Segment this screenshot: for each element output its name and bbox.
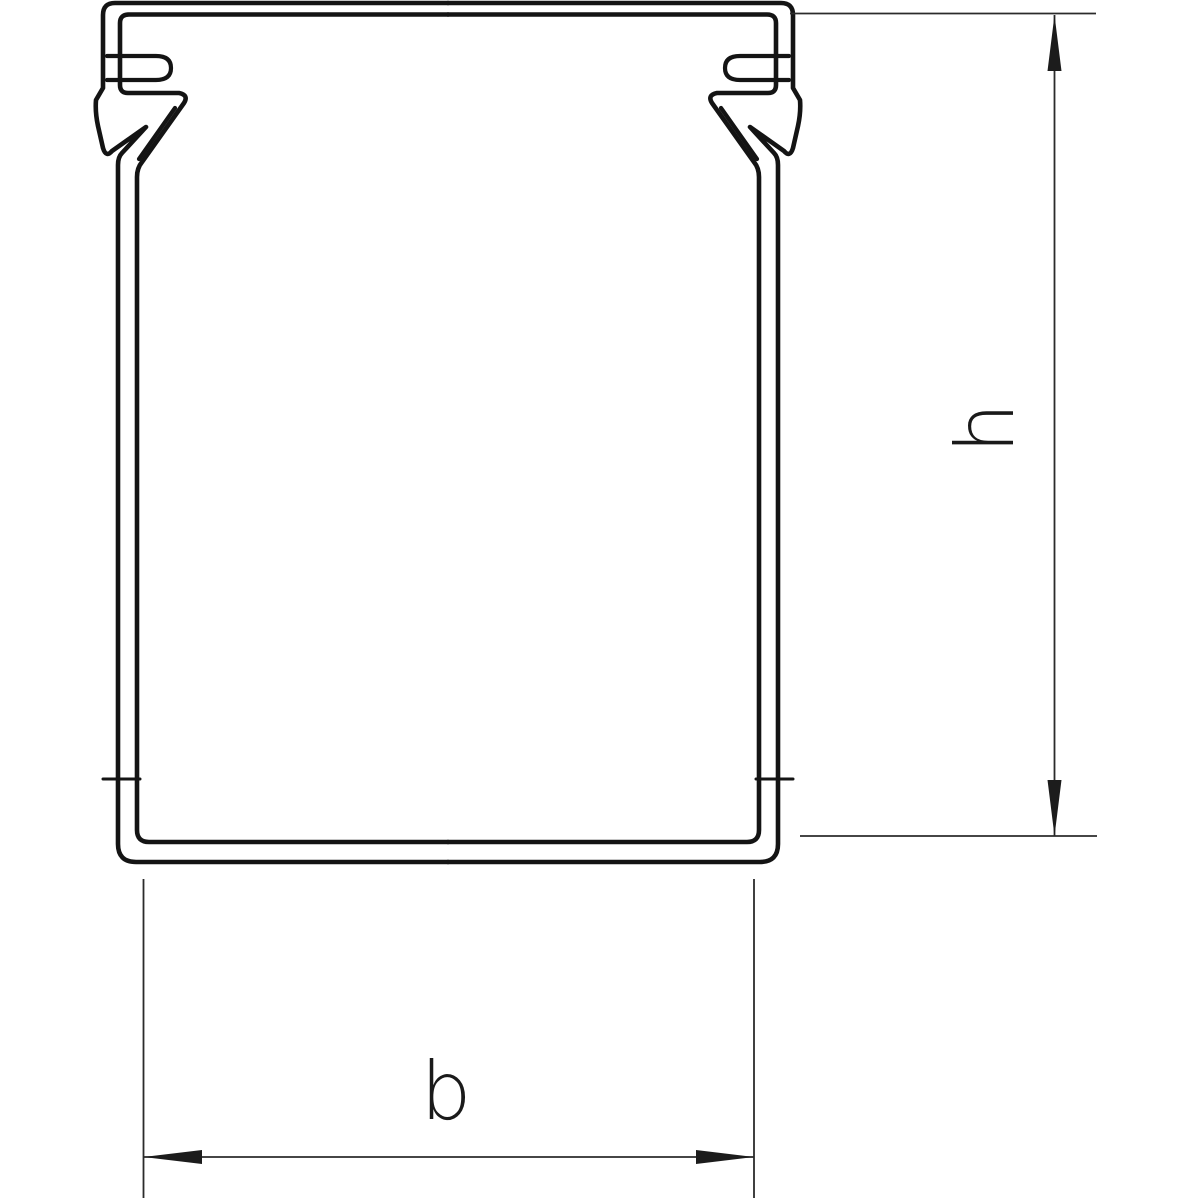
profile-inner-contour-right [448,15,776,843]
height-dimension-label: h [939,403,1032,454]
profile-outer-contour-left [96,3,448,862]
width-dimension [144,879,755,1198]
technical-drawing: h b [0,0,1200,1200]
dimension-labels: h b [421,403,1032,1138]
cover-clip-lip-right [725,56,789,80]
width-arrow-right-icon [696,1150,754,1164]
height-arrow-down-icon [1048,780,1062,836]
height-arrow-up-icon [1048,15,1062,71]
dimension-arrowheads [144,15,1062,1164]
profile-inner-contour-left [120,15,448,843]
width-arrow-left-icon [144,1150,203,1164]
clip-spring-leg-left [139,108,175,159]
dimension-lines [144,14,1098,1199]
drawing-canvas: h b [0,0,1200,1200]
width-dimension-label: b [421,1045,472,1138]
profile-outer-contour-right [448,3,800,862]
clip-spring-leg-right [721,108,757,159]
cover-clip-lip-left [107,56,171,80]
duct-profile-outline [96,3,801,862]
